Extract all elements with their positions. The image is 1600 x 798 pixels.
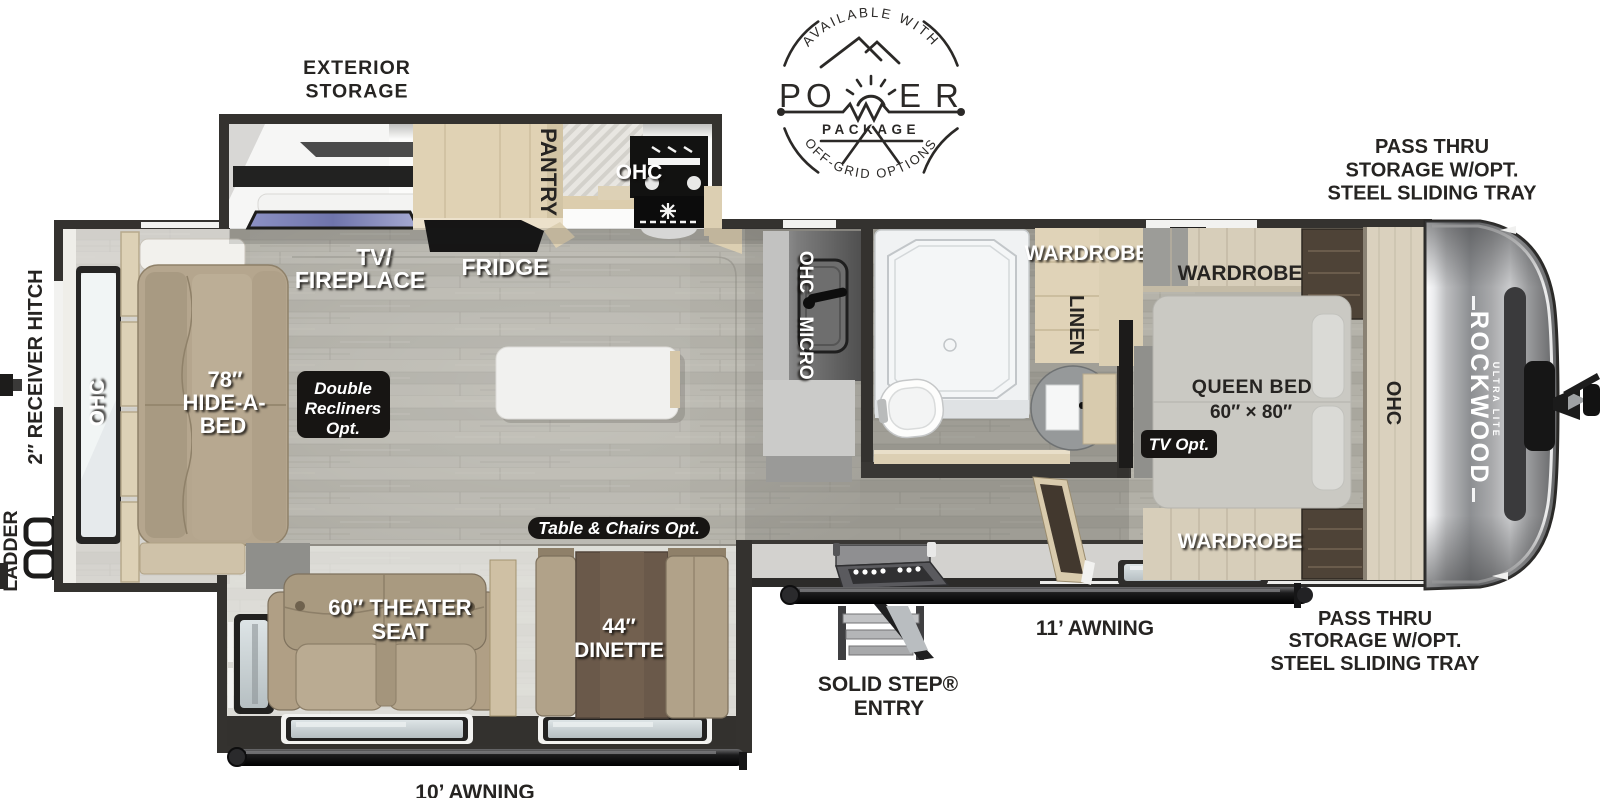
svg-text:44″: 44″ bbox=[602, 615, 635, 638]
svg-text:2″ RECEIVER HITCH: 2″ RECEIVER HITCH bbox=[25, 269, 47, 464]
svg-text:BED: BED bbox=[200, 413, 246, 438]
svg-text:STEEL SLIDING TRAY: STEEL SLIDING TRAY bbox=[1328, 183, 1538, 205]
svg-text:ROCKWOOD: ROCKWOOD bbox=[1465, 311, 1493, 485]
svg-text:OHC: OHC bbox=[1382, 381, 1404, 425]
svg-text:FRIDGE: FRIDGE bbox=[462, 254, 549, 280]
svg-text:QUEEN BED: QUEEN BED bbox=[1192, 376, 1312, 398]
svg-text:PACKAGE: PACKAGE bbox=[822, 122, 920, 137]
svg-text:SOLID STEP®: SOLID STEP® bbox=[818, 673, 959, 696]
svg-text:WARDROBE: WARDROBE bbox=[1178, 530, 1303, 553]
svg-text:ENTRY: ENTRY bbox=[854, 697, 924, 720]
svg-text:STORAGE W/OPT.: STORAGE W/OPT. bbox=[1346, 160, 1519, 182]
svg-text:STEEL SLIDING TRAY: STEEL SLIDING TRAY bbox=[1271, 653, 1481, 675]
svg-text:OHC: OHC bbox=[86, 380, 109, 427]
svg-text:DINETTE: DINETTE bbox=[574, 639, 664, 662]
svg-text:PASS THRU: PASS THRU bbox=[1375, 136, 1489, 158]
svg-text:OHC: OHC bbox=[616, 161, 663, 184]
svg-text:FIREPLACE: FIREPLACE bbox=[295, 267, 425, 293]
svg-text:HIDE-A-: HIDE-A- bbox=[182, 390, 265, 415]
svg-text:Opt.: Opt. bbox=[326, 419, 360, 438]
svg-text:ULTRA LITE: ULTRA LITE bbox=[1491, 362, 1501, 439]
svg-text:TV Opt.: TV Opt. bbox=[1149, 435, 1209, 454]
svg-text:WARDROBE: WARDROBE bbox=[1025, 242, 1150, 265]
svg-text:11’ AWNING: 11’ AWNING bbox=[1036, 617, 1154, 640]
svg-text:LINEN: LINEN bbox=[1065, 295, 1087, 355]
svg-text:WARDROBE: WARDROBE bbox=[1178, 262, 1303, 285]
svg-text:60″ × 80″: 60″ × 80″ bbox=[1210, 402, 1292, 423]
svg-text:STORAGE W/OPT.: STORAGE W/OPT. bbox=[1289, 630, 1462, 652]
svg-text:Double: Double bbox=[314, 379, 372, 398]
svg-text:78″: 78″ bbox=[207, 367, 242, 392]
svg-text:ER: ER bbox=[899, 77, 973, 114]
svg-text:10’ AWNING: 10’ AWNING bbox=[415, 781, 534, 798]
svg-text:60″ THEATER: 60″ THEATER bbox=[328, 595, 471, 620]
svg-text:MICRO: MICRO bbox=[795, 316, 816, 379]
svg-text:Table & Chairs Opt.: Table & Chairs Opt. bbox=[538, 518, 700, 538]
svg-text:PASS THRU: PASS THRU bbox=[1318, 608, 1432, 630]
svg-text:STORAGE: STORAGE bbox=[305, 81, 408, 103]
svg-text:Recliners: Recliners bbox=[305, 399, 382, 418]
svg-text:SEAT: SEAT bbox=[371, 619, 429, 644]
svg-text:PANTRY: PANTRY bbox=[536, 128, 561, 216]
svg-text:PO: PO bbox=[779, 77, 837, 114]
svg-text:EXTERIOR: EXTERIOR bbox=[303, 57, 411, 79]
svg-text:OHC: OHC bbox=[795, 251, 816, 294]
